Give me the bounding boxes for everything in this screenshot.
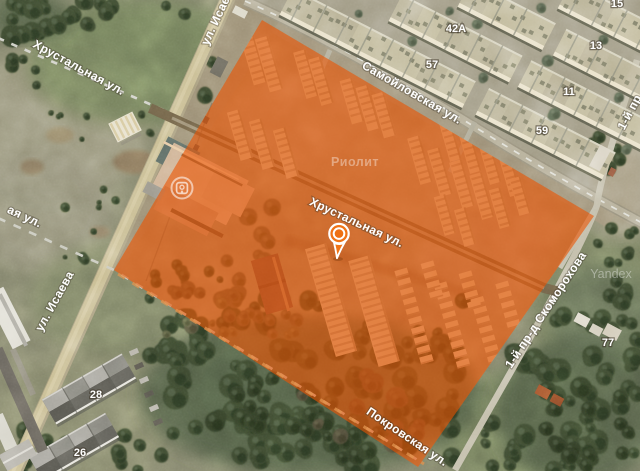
svg-text:28: 28 <box>90 389 102 401</box>
svg-text:77: 77 <box>602 337 614 349</box>
svg-text:11: 11 <box>563 86 575 98</box>
svg-text:Yandex: Yandex <box>590 267 632 281</box>
svg-text:42А: 42А <box>446 23 466 35</box>
svg-text:Риолит: Риолит <box>331 155 379 169</box>
svg-text:15: 15 <box>611 0 623 10</box>
svg-text:57: 57 <box>426 59 438 71</box>
svg-text:26: 26 <box>74 447 86 459</box>
svg-text:59: 59 <box>536 125 548 137</box>
svg-text:13: 13 <box>590 40 602 52</box>
